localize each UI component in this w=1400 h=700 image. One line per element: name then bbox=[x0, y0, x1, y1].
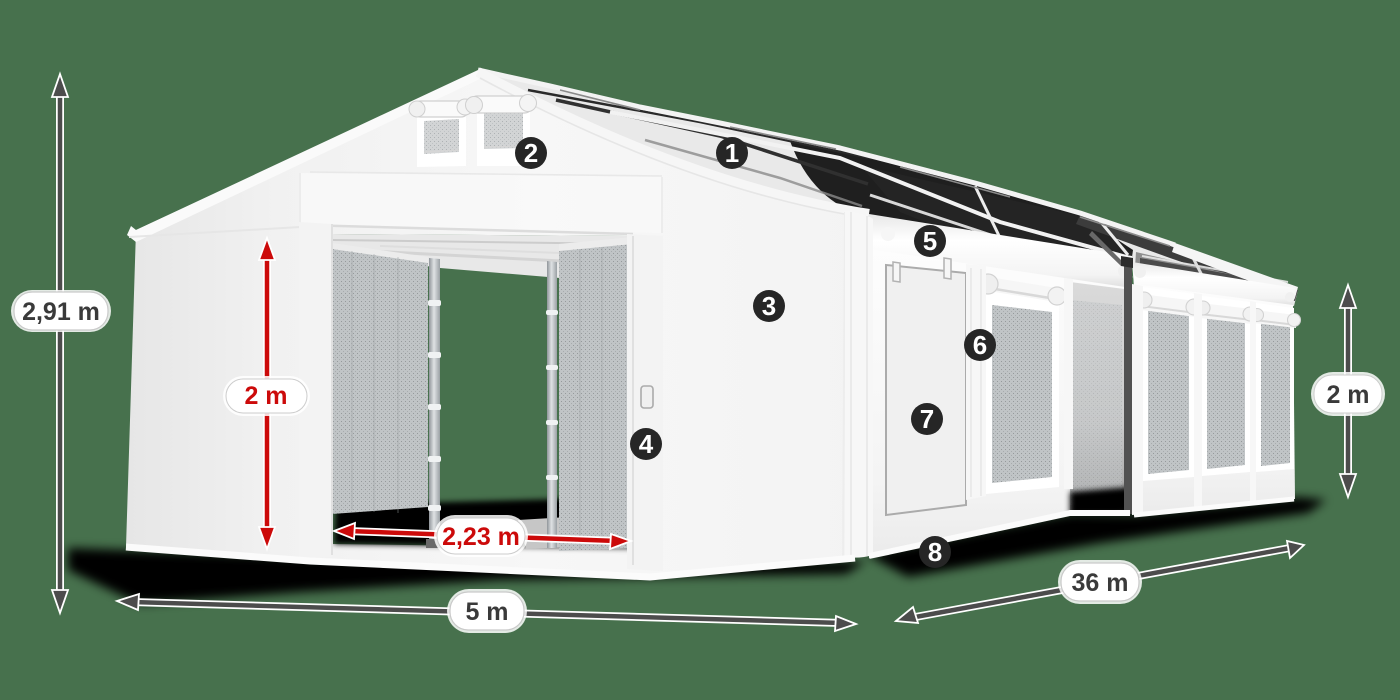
svg-text:1: 1 bbox=[725, 138, 739, 168]
svg-text:5 m: 5 m bbox=[465, 598, 508, 626]
svg-text:3: 3 bbox=[762, 291, 776, 321]
svg-text:7: 7 bbox=[920, 404, 934, 434]
svg-text:8: 8 bbox=[928, 537, 942, 567]
svg-text:4: 4 bbox=[639, 429, 654, 459]
svg-text:2: 2 bbox=[524, 138, 538, 168]
svg-text:2,23 m: 2,23 m bbox=[442, 523, 520, 551]
svg-text:2 m: 2 m bbox=[244, 382, 287, 410]
svg-text:2,91 m: 2,91 m bbox=[22, 298, 100, 326]
svg-text:2 m: 2 m bbox=[1326, 381, 1369, 409]
svg-text:5: 5 bbox=[923, 226, 937, 256]
svg-text:6: 6 bbox=[973, 330, 987, 360]
svg-text:36 m: 36 m bbox=[1072, 569, 1129, 597]
